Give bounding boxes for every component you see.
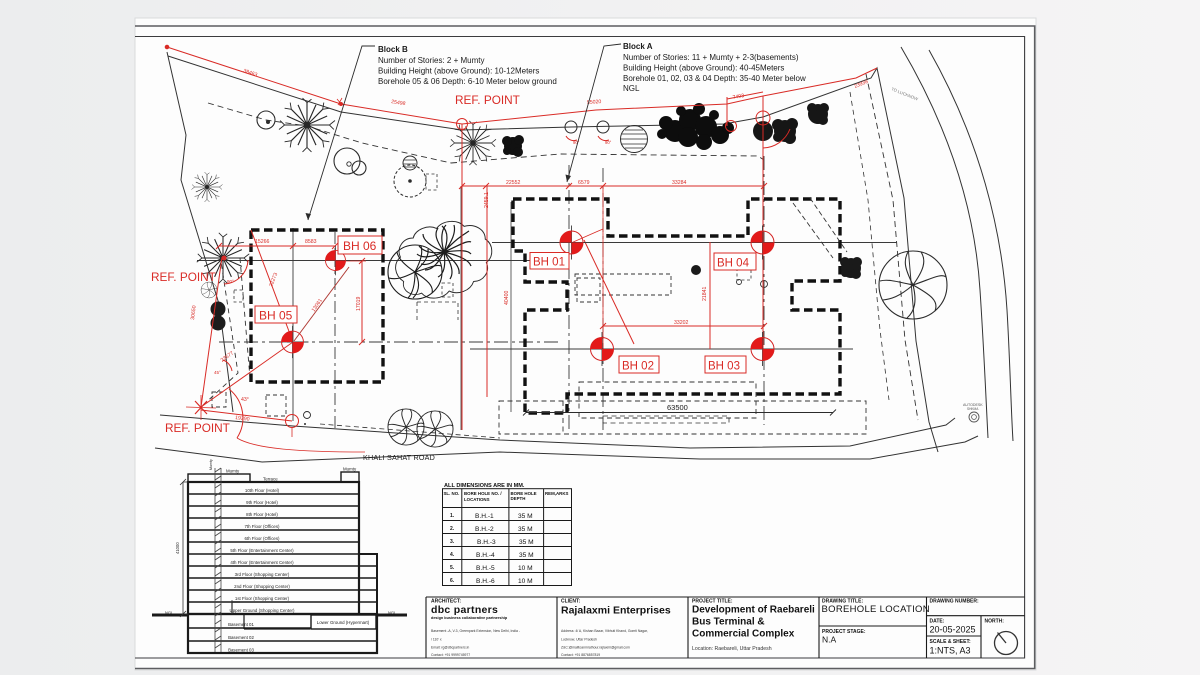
svg-text:41000: 41000 — [175, 542, 180, 554]
svg-text:BH 05: BH 05 — [259, 309, 293, 323]
svg-text:10th Floor (Hotel): 10th Floor (Hotel) — [245, 488, 280, 493]
svg-text:6.: 6. — [450, 578, 455, 584]
svg-text:90°: 90° — [227, 279, 234, 284]
svg-text:B.H.-6: B.H.-6 — [476, 578, 495, 585]
svg-text:Contact: +91 8876857819: Contact: +91 8876857819 — [561, 653, 600, 657]
svg-text:15266: 15266 — [255, 239, 270, 245]
svg-text:SHKMA: SHKMA — [967, 407, 979, 411]
svg-text:B.H.-4: B.H.-4 — [476, 552, 495, 559]
svg-text:NGL: NGL — [623, 84, 640, 93]
svg-text:22552: 22552 — [506, 180, 521, 186]
svg-text:1:NTS, A3: 1:NTS, A3 — [930, 646, 971, 656]
svg-text:Basement -A, V-3, Greenpark Ex: Basement -A, V-3, Greenpark Extension, N… — [431, 629, 520, 633]
svg-text:REM,ARKS: REM,ARKS — [545, 491, 568, 496]
svg-text:Basement 03: Basement 03 — [228, 648, 254, 653]
svg-text:45°: 45° — [214, 370, 221, 375]
svg-text:Basement 02: Basement 02 — [228, 635, 254, 640]
svg-text:Bus Terminal &: Bus Terminal & — [692, 617, 765, 628]
svg-text:4th Floor (Entertainment Cente: 4th Floor (Entertainment Center) — [230, 560, 294, 565]
svg-text:Mumty: Mumty — [226, 469, 240, 474]
svg-text:Email: rg@dbcpartners.in: Email: rg@dbcpartners.in — [431, 646, 469, 650]
svg-text:BH 06: BH 06 — [343, 239, 377, 253]
svg-text:Contact: +91 9999745977: Contact: +91 9999745977 — [431, 653, 470, 657]
svg-text:2.: 2. — [450, 526, 455, 532]
svg-text:NGL: NGL — [388, 610, 397, 615]
svg-text:Upper Ground (Shopping Center): Upper Ground (Shopping Center) — [230, 608, 295, 613]
svg-text:REF. POINT: REF. POINT — [165, 421, 230, 435]
svg-text:Building Height (above Ground): Building Height (above Ground): 10-12Met… — [378, 67, 539, 76]
svg-text:35 M: 35 M — [518, 513, 533, 520]
svg-text:5th Floor (Entertainment Cente: 5th Floor (Entertainment Center) — [230, 548, 294, 553]
svg-text:63500: 63500 — [667, 403, 688, 412]
svg-text:DEPTH: DEPTH — [511, 496, 526, 501]
svg-text:BH 03: BH 03 — [708, 361, 740, 373]
svg-text:KHALI SAHAT ROAD: KHALI SAHAT ROAD — [363, 453, 435, 462]
svg-text:BORE HOLE NO. /: BORE HOLE NO. / — [464, 491, 502, 496]
svg-text:Terrace: Terrace — [263, 477, 278, 482]
svg-text:N.A: N.A — [822, 635, 837, 645]
svg-text:Lucknow, Uttar Pradesh: Lucknow, Uttar Pradesh — [561, 638, 597, 642]
svg-text:43°: 43° — [241, 397, 249, 403]
svg-text:BOREHOLE LOCATION: BOREHOLE LOCATION — [822, 604, 930, 615]
svg-text:B.H.-5: B.H.-5 — [476, 565, 495, 572]
svg-text:Mumty: Mumty — [343, 467, 357, 472]
svg-text:Number of Stories: 2 + Mumty: Number of Stories: 2 + Mumty — [378, 56, 484, 65]
svg-text:LOCATIONS: LOCATIONS — [464, 497, 490, 502]
svg-text:B.H.-2: B.H.-2 — [475, 526, 494, 533]
svg-text:ALL DIMENSIONS ARE IN MM.: ALL DIMENSIONS ARE IN MM. — [444, 483, 525, 489]
svg-text:7th Floor (Offices): 7th Floor (Offices) — [244, 524, 280, 529]
svg-text:BH 04: BH 04 — [717, 258, 750, 270]
svg-text:Mumty: Mumty — [209, 459, 213, 470]
svg-text:8th Floor (Hotel): 8th Floor (Hotel) — [246, 512, 278, 517]
svg-text:NGL: NGL — [165, 610, 174, 615]
svg-text:Lower Ground (Hypermart): Lower Ground (Hypermart) — [317, 620, 370, 625]
svg-text:Location: Raebareli, Uttar Pra: Location: Raebareli, Uttar Pradesh — [692, 646, 772, 652]
svg-text:Borehole 05 & 06 Depth: 6-10 M: Borehole 05 & 06 Depth: 6-10 Meter below… — [378, 77, 557, 86]
svg-text:10 M: 10 M — [518, 578, 533, 585]
svg-text:8583: 8583 — [305, 239, 317, 245]
svg-text:10 M: 10 M — [518, 565, 533, 572]
svg-text:5.: 5. — [450, 565, 455, 571]
svg-text:B.H.-3: B.H.-3 — [477, 539, 496, 546]
svg-text:Commercial Complex: Commercial Complex — [692, 629, 795, 640]
svg-text:dbc partners: dbc partners — [431, 604, 498, 616]
svg-text:6579: 6579 — [578, 180, 590, 186]
svg-text:21841: 21841 — [702, 286, 708, 301]
svg-text:33202: 33202 — [674, 320, 689, 326]
svg-text:BH 02: BH 02 — [622, 361, 654, 373]
svg-text:2459.1: 2459.1 — [484, 192, 490, 208]
svg-text:6th Floor (Offices): 6th Floor (Offices) — [244, 536, 280, 541]
svg-text:Z&C:@mailtoanmrathour.rajlaxmi: Z&C:@mailtoanmrathour.rajlaxmi@gmail.com — [561, 646, 630, 650]
svg-text:BH 01: BH 01 — [533, 257, 565, 269]
svg-text:Rajalaxmi Enterprises: Rajalaxmi Enterprises — [561, 605, 671, 617]
svg-text:DRAWING NUMBER:: DRAWING NUMBER: — [930, 599, 979, 605]
svg-text:Address: 4/ A, Kishan Bazar, V: Address: 4/ A, Kishan Bazar, Vibhuti Kha… — [561, 629, 648, 633]
svg-text:17019: 17019 — [356, 296, 362, 311]
svg-text:REF. POINT: REF. POINT — [455, 93, 520, 107]
svg-text:35 M: 35 M — [518, 526, 533, 533]
svg-text:Block A: Block A — [623, 42, 653, 51]
svg-text:4.: 4. — [450, 552, 455, 558]
svg-text:design business collaborative: design business collaborative partnershi… — [431, 616, 508, 620]
svg-text:1.: 1. — [450, 513, 455, 519]
svg-text:3.: 3. — [450, 539, 455, 545]
svg-text:SCALE & SHEET:: SCALE & SHEET: — [930, 639, 971, 645]
svg-text:Block B: Block B — [378, 45, 408, 54]
svg-text:B.H.-1: B.H.-1 — [475, 513, 494, 520]
svg-text:/ 110' x: / 110' x — [431, 638, 442, 642]
svg-text:1st Floor (Shopping Center): 1st Floor (Shopping Center) — [235, 596, 290, 601]
svg-text:Number of Stories: 11 + Mumty: Number of Stories: 11 + Mumty + 2-3(base… — [623, 53, 799, 62]
svg-text:20-05-2025: 20-05-2025 — [930, 625, 976, 635]
svg-text:33284: 33284 — [672, 180, 687, 186]
svg-text:3rd Floor (Shopping Center): 3rd Floor (Shopping Center) — [235, 572, 290, 577]
svg-text:35 M: 35 M — [519, 552, 534, 559]
svg-text:2nd Floor (Shopping Center): 2nd Floor (Shopping Center) — [234, 584, 290, 589]
svg-text:9th Floor (Hotel): 9th Floor (Hotel) — [246, 500, 278, 505]
svg-text:SL. NO.: SL. NO. — [444, 491, 460, 496]
svg-text:90°: 90° — [605, 140, 612, 145]
svg-text:35 M: 35 M — [519, 539, 534, 546]
svg-text:Building Height (above Ground): Building Height (above Ground): 40-45Met… — [623, 64, 784, 73]
svg-text:REF. POINT: REF. POINT — [151, 270, 216, 284]
svg-text:Basement 01: Basement 01 — [228, 622, 254, 627]
svg-text:Borehole 01, 02, 03 & 04 Depth: Borehole 01, 02, 03 & 04 Depth: 35-40 Me… — [623, 74, 806, 83]
svg-text:Development of Raebareli: Development of Raebareli — [692, 605, 815, 616]
svg-text:40400: 40400 — [504, 290, 510, 305]
svg-text:NORTH:: NORTH: — [985, 619, 1005, 625]
